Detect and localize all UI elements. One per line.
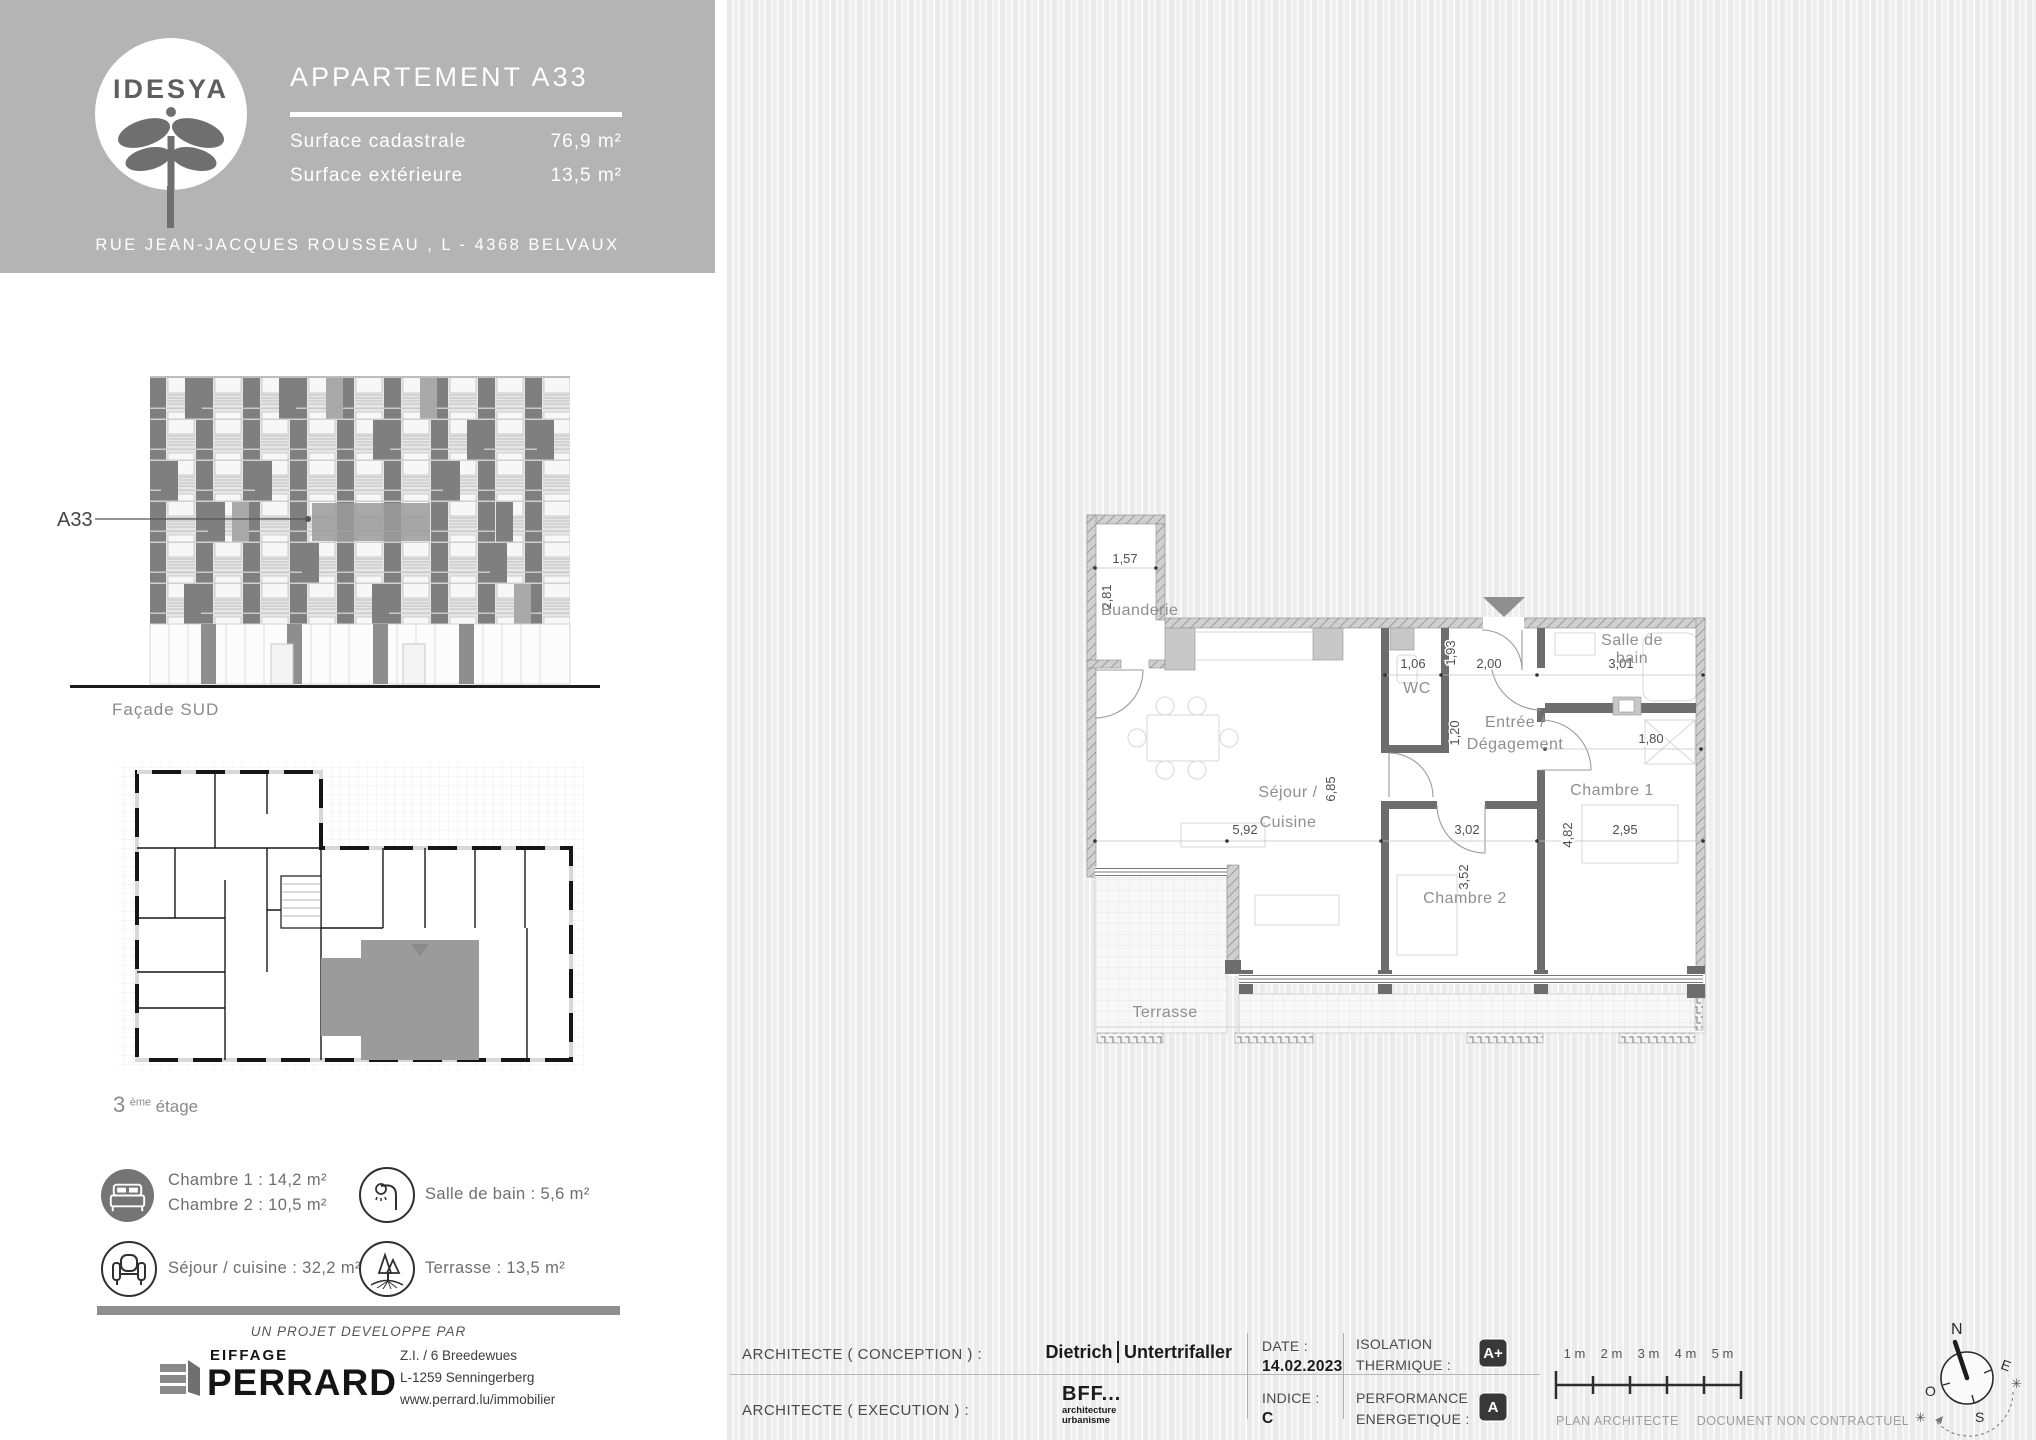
logo-text: IDESYA (113, 74, 229, 104)
conception-label: ARCHITECTE ( CONCEPTION ) : (742, 1346, 982, 1363)
armchair-icon (100, 1240, 158, 1298)
facade-elevation-drawing: A33 (55, 368, 615, 708)
footer-col-divider (1247, 1333, 1248, 1419)
brand-perrard: PERRARD (207, 1362, 397, 1404)
stem-icon (168, 136, 175, 190)
performance-badge: A (1478, 1392, 1508, 1422)
scale-label-1: 1 m (1556, 1346, 1593, 1361)
compass-e: E (1999, 1356, 2013, 1374)
isolation-badge: A+ (1478, 1338, 1508, 1368)
room-label-terrasse: Terrasse (1132, 1004, 1197, 1021)
scale-label-4: 4 m (1667, 1346, 1704, 1361)
title-underline (290, 112, 622, 117)
compass-icon: N E O S ✳ ✳ (1903, 1316, 2033, 1438)
dim-ch1-w: 2,95 (1612, 822, 1637, 837)
bedroom-icon (100, 1168, 155, 1223)
isolation-label2: THERMIQUE : (1356, 1357, 1451, 1373)
logo-stem (167, 186, 174, 228)
legend-bathroom: Salle de bain : 5,6 m² (425, 1182, 590, 1207)
dim-buanderie-w: 1,57 (1112, 551, 1137, 566)
eiffage-logo-icon (160, 1358, 200, 1400)
keyplan-caption: 3 ème étage (113, 1092, 198, 1118)
dim-entree-w: 2,00 (1476, 656, 1501, 671)
sun-icon: ✳ (2011, 1376, 2022, 1391)
developer-address-line1: Z.I. / 6 Breedewues (400, 1345, 555, 1367)
legend-bedroom2: Chambre 2 : 10,5 m² (168, 1193, 327, 1218)
dim-sejour-h: 6,85 (1323, 776, 1338, 801)
indice-value: C (1262, 1410, 1274, 1428)
dim-wc-w: 1,06 (1400, 656, 1425, 671)
performance-label1: PERFORMANCE (1356, 1390, 1468, 1406)
legend-terrace: Terrasse : 13,5 m² (425, 1256, 565, 1281)
room-label-wc: WC (1403, 680, 1431, 697)
conception-architect: Dietrich Untertrifaller (950, 1341, 1232, 1363)
facade-apartment-label: A33 (57, 509, 93, 531)
keyplan-caption-number: 3 (113, 1092, 125, 1117)
developer-address-line2: L-1259 Senningerberg (400, 1367, 555, 1389)
surface-row: Surface extérieure 13,5 m² (290, 165, 622, 187)
surface-value: 76,9 m² (551, 131, 622, 153)
developer-address: Z.I. / 6 Breedewues L-1259 Senningerberg… (400, 1345, 555, 1411)
facade-caption: Façade SUD (112, 700, 219, 720)
room-label-sejour1: Séjour / (1258, 784, 1317, 801)
conception-name2: Untertrifaller (1124, 1342, 1232, 1363)
footer-row-divider (730, 1374, 1540, 1375)
plan-note-2: DOCUMENT NON CONTRACTUEL (1697, 1414, 1909, 1428)
plan-note: PLAN ARCHITECTE DOCUMENT NON CONTRACTUEL (1556, 1414, 1909, 1428)
logo-bud-icon (166, 107, 176, 117)
leaf-icon (114, 112, 173, 153)
indice-label: INDICE : (1262, 1390, 1320, 1406)
name-divider (1117, 1341, 1119, 1363)
shower-icon (358, 1166, 416, 1224)
developer-tagline: UN PROJET DEVELOPPE PAR (97, 1324, 620, 1339)
page-title: APPARTEMENT A33 (290, 62, 589, 93)
keyplan-caption-word: étage (156, 1097, 199, 1116)
leaf-icon (168, 112, 227, 153)
room-label-sejour2: Cuisine (1260, 814, 1317, 831)
footer-col-divider (1343, 1333, 1344, 1419)
scale-label-2: 2 m (1593, 1346, 1630, 1361)
execution-name: BFF... (1062, 1383, 1232, 1406)
legend-bedrooms: Chambre 1 : 14,2 m² Chambre 2 : 10,5 m² (168, 1168, 327, 1218)
dim-entree-h1: 1,93 (1443, 640, 1458, 665)
dim-entree-h2: 1,20 (1447, 720, 1462, 745)
scale-bar (1550, 1368, 1750, 1402)
compass-s: S (1975, 1409, 1984, 1425)
surface-label: Surface extérieure (290, 165, 463, 187)
room-label-sdb1: Salle de (1601, 632, 1663, 649)
compass-n: N (1951, 1321, 1963, 1338)
apartment-floor-plan: 1,57 2,81 1,06 1,93 2,00 3,01 1,20 1,80 … (1085, 505, 1725, 1050)
dim-ch2-w: 3,02 (1454, 822, 1479, 837)
project-address: RUE JEAN-JACQUES ROUSSEAU , L - 4368 BEL… (0, 236, 715, 255)
room-label-sdb2: bain (1616, 650, 1648, 667)
execution-architect: BFF... architecture urbanisme (1062, 1383, 1232, 1426)
room-label-chambre1: Chambre 1 (1570, 782, 1654, 799)
trees-icon (358, 1240, 416, 1298)
keyplan-caption-sup: ème (130, 1097, 151, 1109)
header: IDESYA APPARTEMENT A33 Surface cadastral… (0, 0, 715, 273)
idesya-logo-icon: IDESYA (95, 38, 247, 190)
room-label-entree2: Dégagement (1467, 736, 1564, 753)
plan-entrance-arrow-icon (1483, 597, 1525, 617)
compass-o: O (1925, 1383, 1936, 1399)
room-label-entree1: Entrée / (1485, 714, 1545, 731)
execution-label: ARCHITECTE ( EXECUTION ) : (742, 1402, 969, 1419)
date-value: 14.02.2023 (1262, 1358, 1343, 1376)
plan-note-1: PLAN ARCHITECTE (1556, 1414, 1679, 1428)
sun-icon: ✳ (1915, 1410, 1926, 1425)
scale-label-5: 5 m (1704, 1346, 1741, 1361)
keyplan-drawing (115, 758, 605, 1088)
surface-row: Surface cadastrale 76,9 m² (290, 131, 622, 153)
legend-bedroom1: Chambre 1 : 14,2 m² (168, 1168, 327, 1193)
scale-label-3: 3 m (1630, 1346, 1667, 1361)
performance-label2: ENERGETIQUE : (1356, 1411, 1470, 1427)
room-label-chambre2: Chambre 2 (1423, 890, 1507, 907)
dim-ch1-h: 4,82 (1560, 822, 1575, 847)
legend-living: Séjour / cuisine : 32,2 m² (168, 1256, 361, 1281)
plan-sheet: IDESYA APPARTEMENT A33 Surface cadastral… (0, 0, 2036, 1440)
surface-label: Surface cadastrale (290, 131, 466, 153)
developer-address-line3[interactable]: www.perrard.lu/immobilier (400, 1389, 555, 1411)
room-label-buanderie: Buanderie (1101, 602, 1178, 619)
idesya-logo: IDESYA (95, 38, 247, 190)
execution-sub2: urbanisme (1062, 1416, 1232, 1426)
conception-name1: Dietrich (1045, 1342, 1112, 1363)
facade-highlight-a33 (312, 503, 430, 541)
dim-ch1-top: 1,80 (1638, 731, 1663, 746)
isolation-label1: ISOLATION (1356, 1336, 1432, 1352)
date-label: DATE : (1262, 1338, 1308, 1354)
divider-rule (97, 1306, 620, 1315)
dim-ch2-h: 3,52 (1456, 864, 1471, 889)
surface-value: 13,5 m² (551, 165, 622, 187)
dim-sejour-w: 5,92 (1232, 822, 1257, 837)
